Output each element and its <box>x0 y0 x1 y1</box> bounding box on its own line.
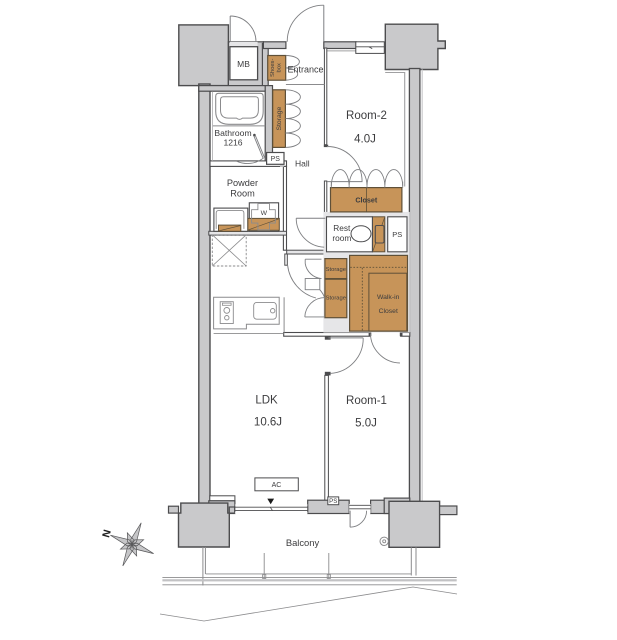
svg-text:Room: Room <box>230 188 255 198</box>
svg-text:Shoes-: Shoes- <box>270 59 276 77</box>
svg-text:MB: MB <box>237 59 250 69</box>
svg-text:5.0J: 5.0J <box>355 418 377 430</box>
svg-text:PS: PS <box>392 230 402 239</box>
svg-text:Closet: Closet <box>355 195 378 204</box>
svg-text:AC: AC <box>272 482 282 489</box>
svg-text:Rest: Rest <box>333 223 351 233</box>
svg-text:LDK: LDK <box>255 395 278 407</box>
svg-text:room: room <box>332 233 351 243</box>
svg-text:1216: 1216 <box>223 137 242 147</box>
svg-text:Bathroom: Bathroom <box>214 128 251 138</box>
svg-text:Entrance: Entrance <box>287 65 323 75</box>
svg-text:Room-1: Room-1 <box>346 395 387 407</box>
svg-text:Balcony: Balcony <box>286 537 320 548</box>
svg-text:box: box <box>276 63 282 72</box>
svg-text:Storage: Storage <box>276 106 283 130</box>
svg-text:Storage: Storage <box>326 296 346 302</box>
svg-text:Storage: Storage <box>326 267 346 273</box>
svg-text:Hall: Hall <box>295 158 310 168</box>
svg-text:N: N <box>100 528 114 539</box>
svg-text:PS: PS <box>271 156 281 163</box>
svg-text:Closet: Closet <box>379 308 398 315</box>
svg-text:Room-2: Room-2 <box>346 110 387 122</box>
svg-text:Walk-in: Walk-in <box>377 294 400 301</box>
svg-text:PS: PS <box>329 498 337 505</box>
svg-text:Powder: Powder <box>227 178 258 188</box>
svg-text:W: W <box>261 210 268 217</box>
svg-text:4.0J: 4.0J <box>354 134 376 146</box>
svg-text:10.6J: 10.6J <box>254 417 282 429</box>
